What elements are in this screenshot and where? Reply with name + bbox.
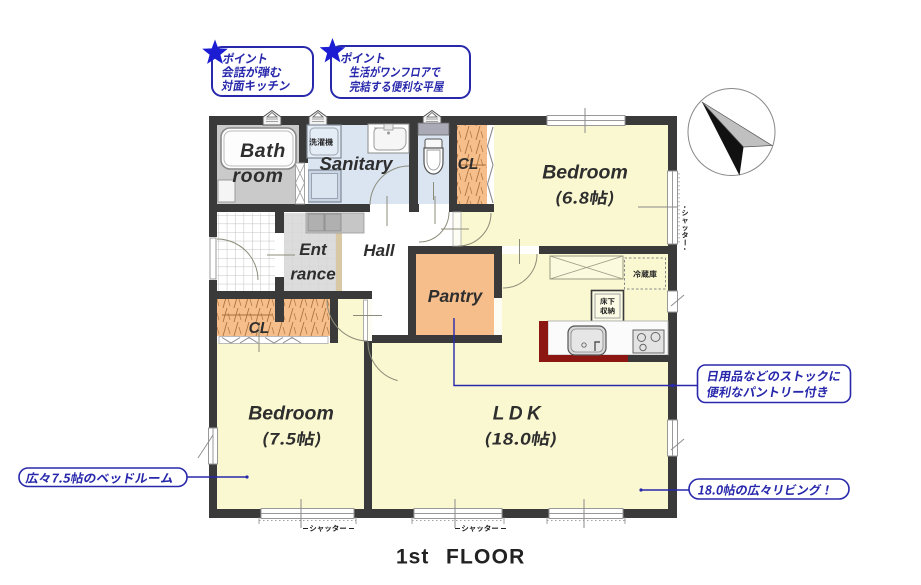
svg-text:Bedroom: Bedroom: [542, 162, 628, 184]
svg-text:Pantry: Pantry: [428, 286, 484, 306]
svg-text:CL: CL: [249, 320, 270, 337]
svg-text:room: room: [232, 165, 283, 187]
svg-text:Sanitary: Sanitary: [319, 153, 394, 174]
svg-text:Bath: Bath: [240, 140, 286, 162]
svg-text:FLOOR: FLOOR: [446, 546, 526, 569]
svg-text:Bedroom: Bedroom: [248, 403, 334, 425]
svg-text:1st: 1st: [396, 546, 429, 569]
svg-text:Hall: Hall: [363, 241, 395, 260]
svg-text:Ent: Ent: [299, 240, 328, 259]
svg-text:CL: CL: [458, 156, 479, 173]
svg-text:rance: rance: [290, 265, 335, 284]
svg-text:LDK: LDK: [493, 404, 546, 425]
